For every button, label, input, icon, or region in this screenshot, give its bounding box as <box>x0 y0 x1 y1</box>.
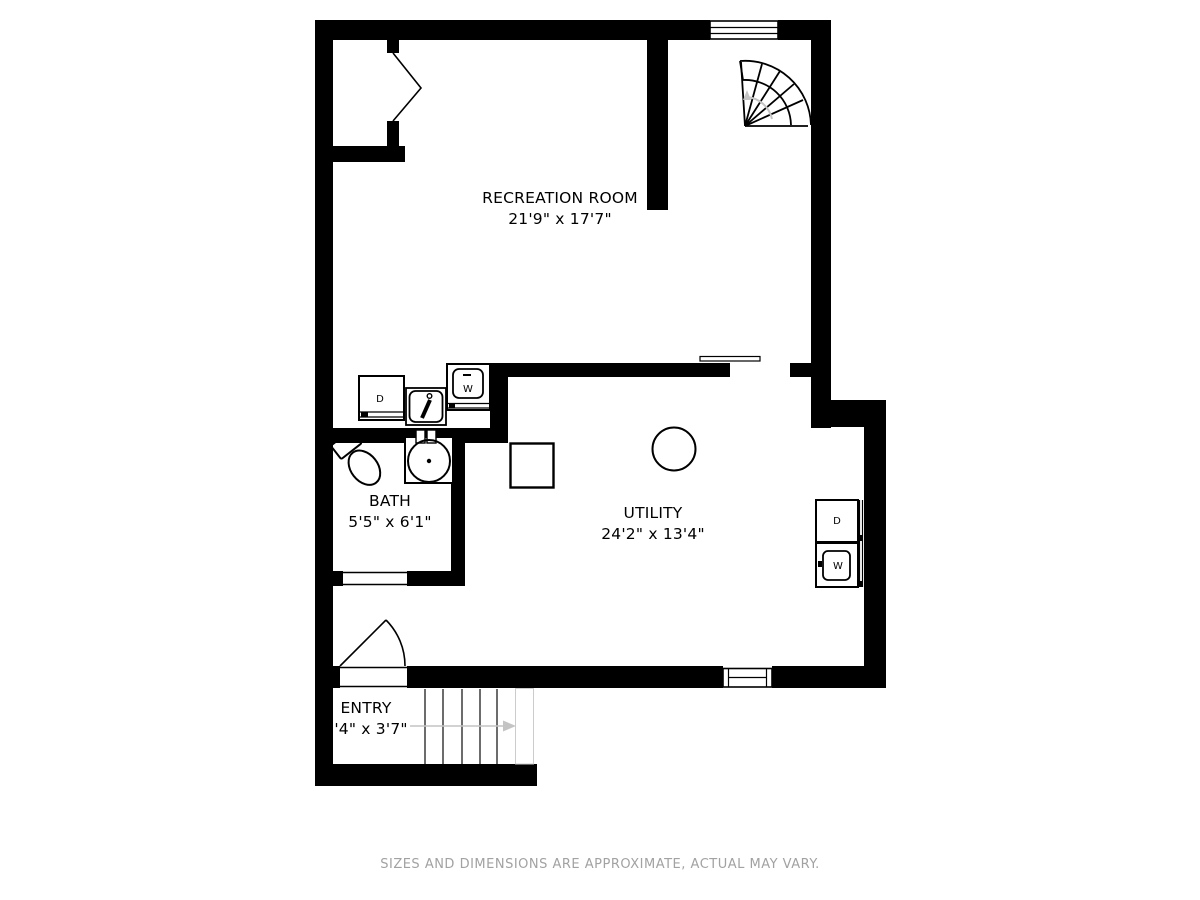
floor-plan: RECREATION ROOM 21'9" x 17'7" BATH 5'5" … <box>0 0 1200 900</box>
wall-closet-bottom <box>331 146 405 162</box>
wall-utility-top <box>490 363 730 377</box>
room-dims: 3'4" x 3'7" <box>324 719 407 740</box>
wall-right-upper <box>811 20 831 428</box>
room-name: UTILITY <box>601 503 705 524</box>
footer-note: SIZES AND DIMENSIONS ARE APPROXIMATE, AC… <box>380 857 820 872</box>
entry-threshold <box>340 668 407 687</box>
room-name: ENTRY <box>324 698 407 719</box>
wall-stair-divider <box>647 40 668 210</box>
laundry-sink-icon <box>406 388 446 425</box>
dryer-label: D <box>833 516 841 527</box>
utility-dryer-icon: D <box>816 500 858 542</box>
wall-entry-bottom <box>315 764 537 786</box>
room-label-bath: BATH 5'5" x 6'1" <box>348 491 431 533</box>
window-icon-bottom <box>723 669 772 688</box>
wall-laundry-bath-divider <box>333 428 508 443</box>
laundry-dryer-icon: D <box>359 376 404 420</box>
wall-right-lower <box>864 400 886 688</box>
utility-washer-icon: W <box>816 500 863 587</box>
opening-marker <box>700 357 760 362</box>
room-label-utility: UTILITY 24'2" x 13'4" <box>601 503 705 545</box>
wall-closet-stub-top <box>387 40 399 53</box>
bath-door-opening <box>343 573 407 585</box>
closet-door-icon <box>393 53 421 121</box>
entry-door-swing-icon <box>340 620 405 666</box>
room-label-entry: ENTRY 3'4" x 3'7" <box>324 698 407 740</box>
wall-utility-top-stub <box>790 363 811 377</box>
room-dims: 24'2" x 13'4" <box>601 524 705 545</box>
wall-closet-stub-bottom <box>387 121 399 148</box>
room-label-recreation: RECREATION ROOM 21'9" x 17'7" <box>482 188 638 230</box>
staircase-icon <box>410 689 534 765</box>
wall-bath-bottom-stub <box>315 571 343 586</box>
spiral-staircase-icon <box>740 61 811 126</box>
dryer-label: D <box>376 394 384 405</box>
wall-bath-bottom-right <box>407 571 465 586</box>
room-name: BATH <box>348 491 431 512</box>
wall-bottom-entry-stub <box>315 666 340 688</box>
wall-bath-right <box>451 428 465 586</box>
utility-tank-icon <box>653 428 696 471</box>
wall-bottom-left-segment <box>407 666 723 688</box>
fixtures-layer: D W <box>0 0 1200 900</box>
room-dims: 5'5" x 6'1" <box>348 512 431 533</box>
utility-water-heater-icon <box>511 444 554 488</box>
room-name: RECREATION ROOM <box>482 188 638 209</box>
washer-label: W <box>463 384 473 395</box>
room-dims: 21'9" x 17'7" <box>482 209 638 230</box>
laundry-washer-icon: W <box>447 364 490 410</box>
wall-bottom-right-segment <box>772 666 886 688</box>
washer-label: W <box>833 561 843 572</box>
window-icon-top <box>710 21 778 39</box>
wall-top-left-segment <box>315 20 710 40</box>
